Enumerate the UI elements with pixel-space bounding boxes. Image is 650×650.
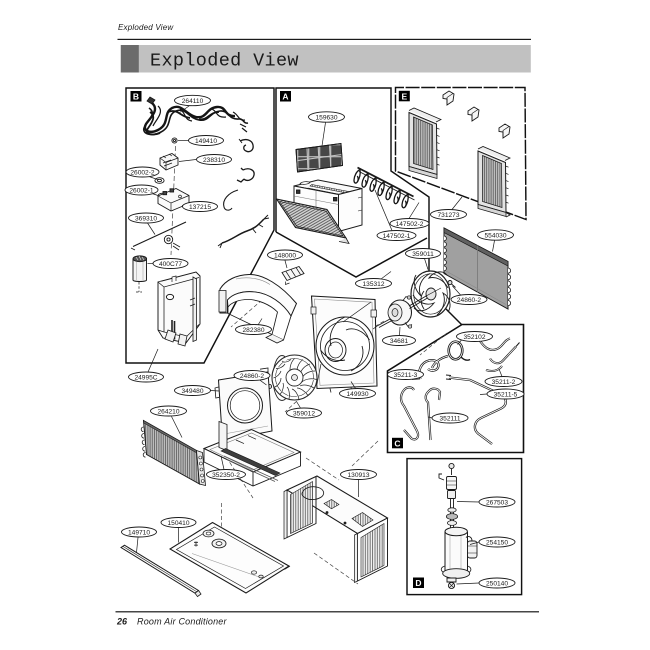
svg-text:130913: 130913 — [347, 472, 369, 479]
svg-text:24860-2: 24860-2 — [240, 373, 265, 380]
svg-text:254150: 254150 — [486, 539, 508, 546]
svg-text:26002-2: 26002-2 — [130, 169, 155, 176]
svg-text:264210: 264210 — [157, 408, 179, 415]
svg-text:352350-2: 352350-2 — [212, 472, 240, 479]
svg-text:400C77: 400C77 — [159, 261, 182, 268]
svg-text:282380: 282380 — [242, 327, 264, 334]
svg-text:147502-2: 147502-2 — [396, 221, 424, 228]
svg-text:D: D — [415, 578, 421, 588]
svg-text:24995C: 24995C — [134, 374, 157, 381]
svg-text:35211-2: 35211-2 — [492, 379, 516, 386]
svg-text:135312: 135312 — [362, 281, 384, 288]
svg-text:137215: 137215 — [189, 204, 211, 211]
svg-text:250140: 250140 — [486, 580, 508, 587]
svg-text:35211-5: 35211-5 — [494, 391, 518, 398]
svg-text:26: 26 — [116, 617, 128, 627]
svg-text:267503: 267503 — [486, 499, 508, 506]
svg-text:159630: 159630 — [315, 114, 337, 121]
svg-text:369310: 369310 — [135, 215, 157, 222]
svg-text:149410: 149410 — [195, 138, 217, 145]
svg-text:E: E — [401, 91, 407, 101]
svg-text:A: A — [282, 92, 288, 102]
svg-text:149930: 149930 — [346, 391, 368, 398]
svg-text:35211-3: 35211-3 — [394, 372, 418, 379]
svg-text:349480: 349480 — [181, 388, 203, 395]
svg-text:238310: 238310 — [203, 157, 225, 164]
svg-text:C: C — [394, 438, 400, 448]
svg-text:Exploded View: Exploded View — [150, 51, 299, 72]
svg-text:731273: 731273 — [437, 212, 459, 219]
svg-text:24860-2: 24860-2 — [457, 297, 482, 304]
svg-text:149710: 149710 — [128, 529, 150, 536]
svg-text:264110: 264110 — [182, 98, 204, 105]
svg-text:26002-1: 26002-1 — [129, 187, 154, 194]
svg-text:Exploded View: Exploded View — [118, 23, 174, 32]
svg-text:147502-1: 147502-1 — [383, 233, 411, 240]
svg-text:554030: 554030 — [484, 232, 506, 239]
svg-text:34681: 34681 — [390, 338, 409, 345]
svg-text:352111: 352111 — [439, 415, 460, 422]
svg-text:Room Air Conditioner: Room Air Conditioner — [137, 617, 228, 627]
svg-text:150410: 150410 — [167, 520, 189, 527]
svg-text:359011: 359011 — [412, 251, 434, 258]
svg-text:359012: 359012 — [293, 410, 315, 417]
svg-text:148000: 148000 — [274, 252, 296, 259]
svg-text:352102: 352102 — [463, 334, 485, 341]
svg-text:B: B — [133, 92, 139, 102]
